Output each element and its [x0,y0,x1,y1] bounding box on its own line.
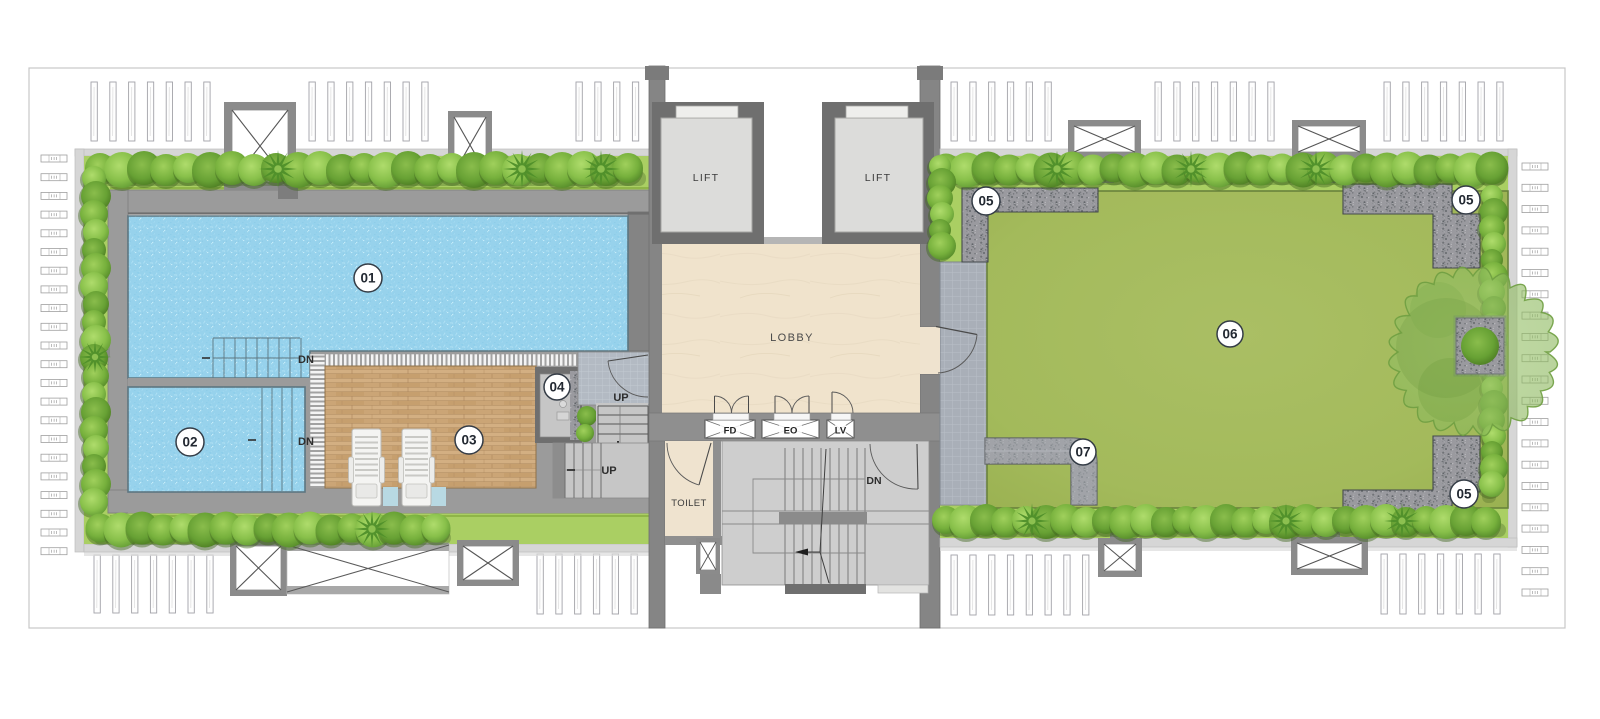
svg-text:FD: FD [724,426,737,437]
svg-text:EO: EO [784,426,798,437]
svg-text:07: 07 [1075,445,1090,460]
svg-text:03: 03 [461,433,477,448]
svg-text:TOILET: TOILET [671,498,706,509]
svg-text:UP: UP [601,465,616,477]
svg-text:LOBBY: LOBBY [770,332,814,344]
svg-text:05: 05 [978,194,994,209]
svg-text:02: 02 [182,435,197,450]
svg-text:06: 06 [1222,327,1238,342]
svg-text:05: 05 [1458,193,1474,208]
svg-text:UP: UP [613,392,628,404]
svg-text:LIFT: LIFT [865,172,891,184]
svg-text:DN: DN [866,475,881,487]
svg-text:04: 04 [549,380,565,395]
svg-text:LIFT: LIFT [693,172,719,184]
svg-text:05: 05 [1456,487,1472,502]
svg-text:01: 01 [360,271,376,286]
svg-text:DN: DN [298,354,314,366]
svg-text:LV: LV [835,426,847,437]
svg-text:DN: DN [298,436,314,448]
